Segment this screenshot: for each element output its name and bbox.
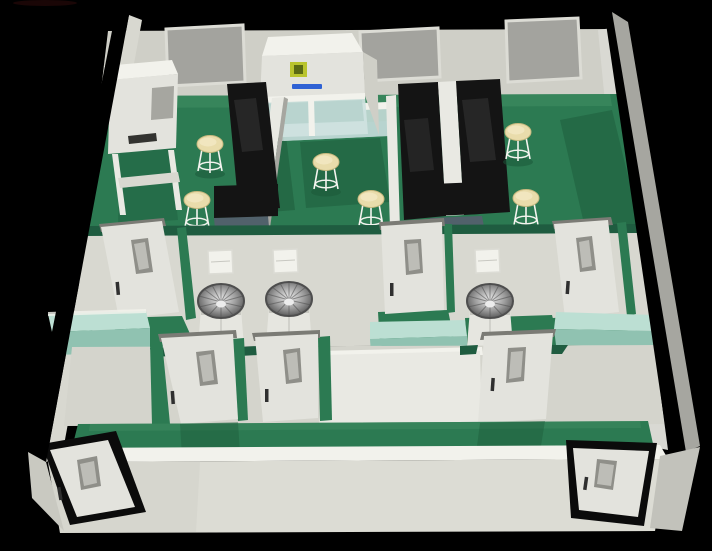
lab-3d-render xyxy=(0,0,712,551)
brand-text-mark xyxy=(292,84,322,89)
watermark-smudge xyxy=(13,0,77,6)
pass-box-2 xyxy=(273,249,298,273)
corridor-wall-panel xyxy=(319,351,482,431)
counter-right xyxy=(554,312,660,347)
pass-box-1 xyxy=(208,250,233,274)
pass-box-3 xyxy=(475,249,500,273)
render-canvas xyxy=(0,0,712,551)
door-lab-center xyxy=(379,218,445,314)
entry-door-right xyxy=(566,440,657,526)
wall-board-right xyxy=(506,18,581,82)
door-anteroom-center xyxy=(252,330,332,422)
door-anteroom-left xyxy=(150,330,248,425)
door-anteroom-right xyxy=(478,329,556,423)
